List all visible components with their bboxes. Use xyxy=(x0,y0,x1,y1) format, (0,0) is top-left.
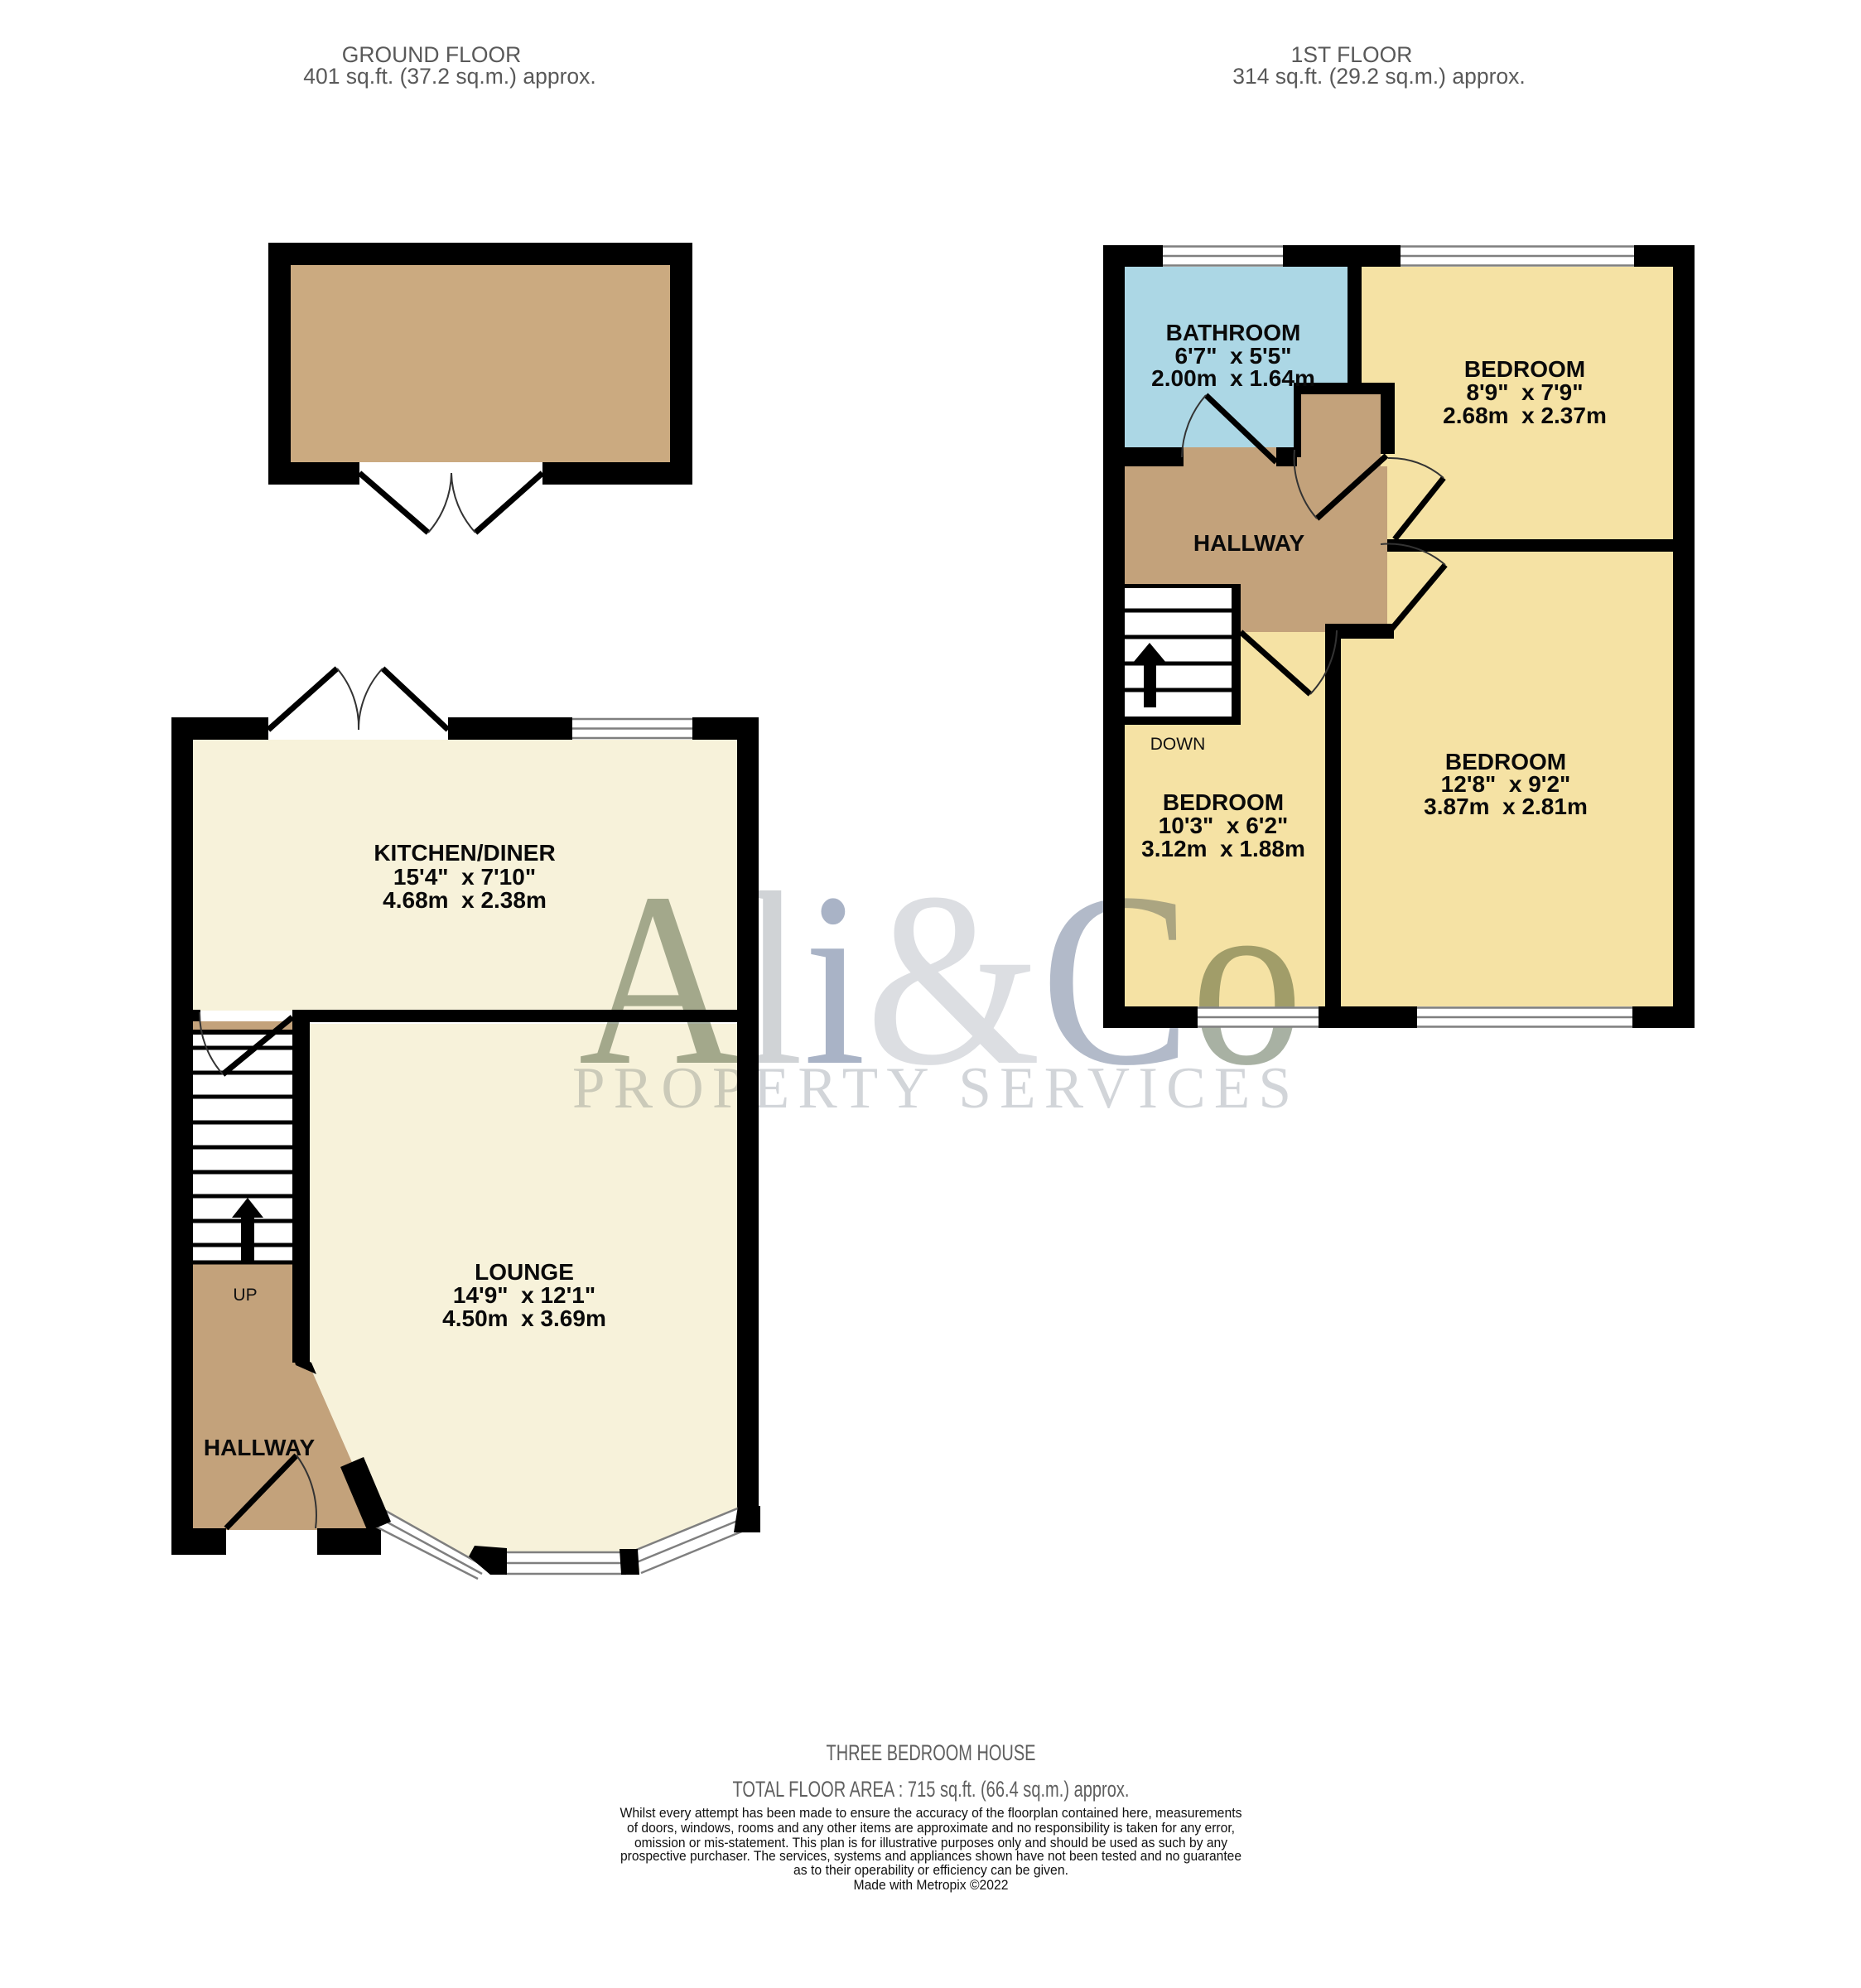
svg-text:BEDROOM: BEDROOM xyxy=(1163,789,1284,815)
svg-text:as to their operability or eff: as to their operability or efficiency ca… xyxy=(793,1862,1068,1878)
svg-text:3.87m x 2.81m: 3.87m x 2.81m xyxy=(1424,794,1588,819)
svg-text:Made with Metropix ©2022: Made with Metropix ©2022 xyxy=(854,1877,1009,1893)
svg-text:15'4" x 7'10": 15'4" x 7'10" xyxy=(393,864,536,890)
svg-text:THREE BEDROOM HOUSE: THREE BEDROOM HOUSE xyxy=(827,1740,1036,1765)
svg-text:4.50m x 3.69m: 4.50m x 3.69m xyxy=(442,1305,606,1331)
svg-text:of doors, windows, rooms and a: of doors, windows, rooms and any other i… xyxy=(627,1820,1235,1836)
svg-text:BATHROOM: BATHROOM xyxy=(1166,320,1301,345)
svg-text:HALLWAY: HALLWAY xyxy=(204,1435,316,1460)
svg-text:314 sq.ft. (29.2 sq.m.) approx: 314 sq.ft. (29.2 sq.m.) approx. xyxy=(1232,64,1526,89)
svg-text:KITCHEN/DINER: KITCHEN/DINER xyxy=(374,840,555,866)
svg-text:HALLWAY: HALLWAY xyxy=(1193,530,1305,556)
svg-text:LOUNGE: LOUNGE xyxy=(475,1259,574,1285)
svg-text:4.68m x 2.38m: 4.68m x 2.38m xyxy=(383,887,547,913)
svg-text:14'9" x 12'1": 14'9" x 12'1" xyxy=(453,1282,595,1308)
svg-text:3.12m x 1.88m: 3.12m x 1.88m xyxy=(1141,836,1305,861)
svg-text:10'3" x 6'2": 10'3" x 6'2" xyxy=(1159,813,1289,838)
svg-text:2.68m x 2.37m: 2.68m x 2.37m xyxy=(1443,403,1607,428)
svg-text:BEDROOM: BEDROOM xyxy=(1464,356,1585,382)
svg-text:UP: UP xyxy=(233,1286,257,1305)
svg-text:8'9" x 7'9": 8'9" x 7'9" xyxy=(1466,379,1583,405)
svg-text:2.00m x 1.64m: 2.00m x 1.64m xyxy=(1151,365,1315,391)
svg-text:TOTAL FLOOR AREA : 715 sq.ft.: TOTAL FLOOR AREA : 715 sq.ft. (66.4 sq.m… xyxy=(733,1777,1130,1802)
svg-text:DOWN: DOWN xyxy=(1150,735,1206,754)
svg-text:401 sq.ft. (37.2 sq.m.) approx: 401 sq.ft. (37.2 sq.m.) approx. xyxy=(303,64,596,89)
svg-text:Whilst every attempt has been: Whilst every attempt has been made to en… xyxy=(620,1805,1242,1821)
